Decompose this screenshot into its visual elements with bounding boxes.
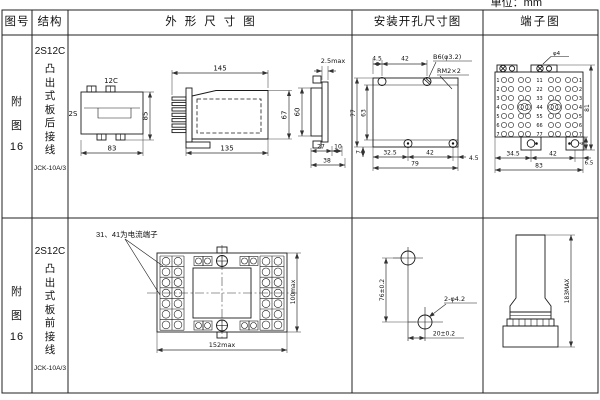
structure-desc: 凸出式板后接线 xyxy=(44,63,57,158)
dim-77: 77 xyxy=(350,109,357,117)
svg-text:1: 1 xyxy=(579,78,582,84)
header-fig-no: 图号 xyxy=(2,10,32,35)
fig-char: 图 xyxy=(2,117,32,133)
header-structure: 结构 xyxy=(32,10,68,35)
dim-6p5: 6.5 xyxy=(585,161,594,167)
engineering-drawing-svg: 12C 2S 85 83 145 135 67 xyxy=(0,0,600,400)
dim-42-bottom: 42 xyxy=(426,150,434,157)
model-label: 2S12C xyxy=(32,246,68,257)
dim-83: 83 xyxy=(108,145,117,153)
svg-text:44: 44 xyxy=(536,105,542,111)
relay-code: JCK-10A/3 xyxy=(33,165,67,172)
dim-10: 10 xyxy=(334,144,342,151)
datasheet-page: 12C 2S 85 83 145 135 67 xyxy=(0,0,600,400)
fig-number-row2: 附 图 16 xyxy=(2,275,32,343)
svg-text:2: 2 xyxy=(496,87,499,93)
dim-81: 81 xyxy=(584,104,591,112)
table-grid xyxy=(2,10,598,393)
dim-63: 63 xyxy=(361,109,368,117)
svg-text:33: 33 xyxy=(536,96,542,102)
callout-b6: B6(φ3.2) xyxy=(433,53,461,61)
structure-desc: 凸出式板前接线 xyxy=(44,263,57,358)
svg-text:11: 11 xyxy=(536,78,542,84)
svg-text:5: 5 xyxy=(579,114,582,120)
dim-42-terminal: 42 xyxy=(549,151,557,158)
callout-phi4: φ4 xyxy=(553,51,561,57)
structure-cell-row2: 2S12C 凸出式板前接线 JCK-10A/3 xyxy=(32,218,68,393)
dim-4p5-top: 4.5 xyxy=(372,56,382,63)
dim-2s: 2S xyxy=(69,110,78,118)
svg-text:6: 6 xyxy=(496,123,499,129)
unit-label: 单位：mm xyxy=(491,0,542,10)
dim-20: 20±0.2 xyxy=(433,331,455,338)
dim-76: 76±0.2 xyxy=(379,279,386,301)
svg-text:55: 55 xyxy=(536,114,542,120)
dim-12c: 12C xyxy=(104,77,118,85)
dim-79: 79 xyxy=(411,161,419,168)
svg-text:3: 3 xyxy=(579,96,582,102)
dim-60: 60 xyxy=(294,108,302,117)
header-outline: 外形尺寸图 xyxy=(68,10,352,35)
dim-2p5max: 2.5max xyxy=(321,57,346,65)
svg-text:6: 6 xyxy=(579,123,582,129)
current-terminal-note: 31、41为电流端子 xyxy=(96,229,158,240)
install-drawing-row1: 4.5 42 B6(φ3.2) RM2×2 77 63 7 32.5 42 xyxy=(350,53,479,171)
svg-text:7: 7 xyxy=(579,132,582,138)
dim-32p5: 32.5 xyxy=(383,150,397,157)
dim-38: 38 xyxy=(323,158,331,165)
dim-183max: 183MAX xyxy=(564,279,571,304)
fig-char: 附 xyxy=(2,283,32,299)
svg-text:1: 1 xyxy=(496,78,499,84)
header-install: 安装开孔尺寸图 xyxy=(352,10,483,35)
svg-text:4: 4 xyxy=(496,105,499,111)
svg-text:5: 5 xyxy=(496,114,499,120)
terminal-drawing-row2: 183MAX xyxy=(503,235,575,347)
svg-text:4: 4 xyxy=(579,105,582,111)
dim-152max: 152max xyxy=(209,341,236,349)
dim-85: 85 xyxy=(142,112,150,121)
fig-char: 附 xyxy=(2,93,32,109)
outline-drawing-row2: 100max 152max xyxy=(125,239,301,353)
relay-code: JCK-10A/3 xyxy=(33,365,67,372)
dim-34p5: 34.5 xyxy=(506,151,520,158)
terminal-drawing-row1: φ4 1111222233334444555566667777 81 4 34.… xyxy=(495,51,595,173)
svg-text:66: 66 xyxy=(536,123,542,129)
dim-4p5-bottom: 4.5 xyxy=(469,155,479,162)
fig-char: 16 xyxy=(2,141,32,153)
dim-83-terminal: 83 xyxy=(535,163,543,170)
fig-char: 图 xyxy=(2,307,32,323)
structure-cell-row1: 2S12C 凸出式板后接线 JCK-10A/3 xyxy=(32,35,68,218)
dim-145: 145 xyxy=(213,65,226,73)
dim-135: 135 xyxy=(220,145,233,153)
svg-text:7: 7 xyxy=(496,132,499,138)
callout-2phi42: 2-φ4.2 xyxy=(444,295,465,303)
fig-char: 16 xyxy=(2,331,32,343)
dim-notch-4: 4 xyxy=(580,142,586,145)
dim-7: 7 xyxy=(356,150,363,154)
svg-text:22: 22 xyxy=(536,87,542,93)
fig-number-row1: 附 图 16 xyxy=(2,85,32,153)
dim-100max: 100max xyxy=(290,279,297,304)
svg-text:3: 3 xyxy=(496,96,499,102)
install-drawing-row2: 76±0.2 2-φ4.2 20±0.2 xyxy=(379,247,477,341)
model-label: 2S12C xyxy=(32,46,68,57)
svg-text:2: 2 xyxy=(579,87,582,93)
header-terminal: 端子图 xyxy=(483,10,598,35)
terminal-grid-row1: 1111222233334444555566667777 xyxy=(496,77,582,138)
dim-67: 67 xyxy=(281,111,289,120)
dim-42-top: 42 xyxy=(401,56,409,63)
outline-drawing-row1: 12C 2S 85 83 145 135 67 xyxy=(69,57,346,168)
dim-27: 27 xyxy=(317,144,325,151)
svg-text:77: 77 xyxy=(536,132,542,138)
callout-rm2: RM2×2 xyxy=(437,67,461,75)
